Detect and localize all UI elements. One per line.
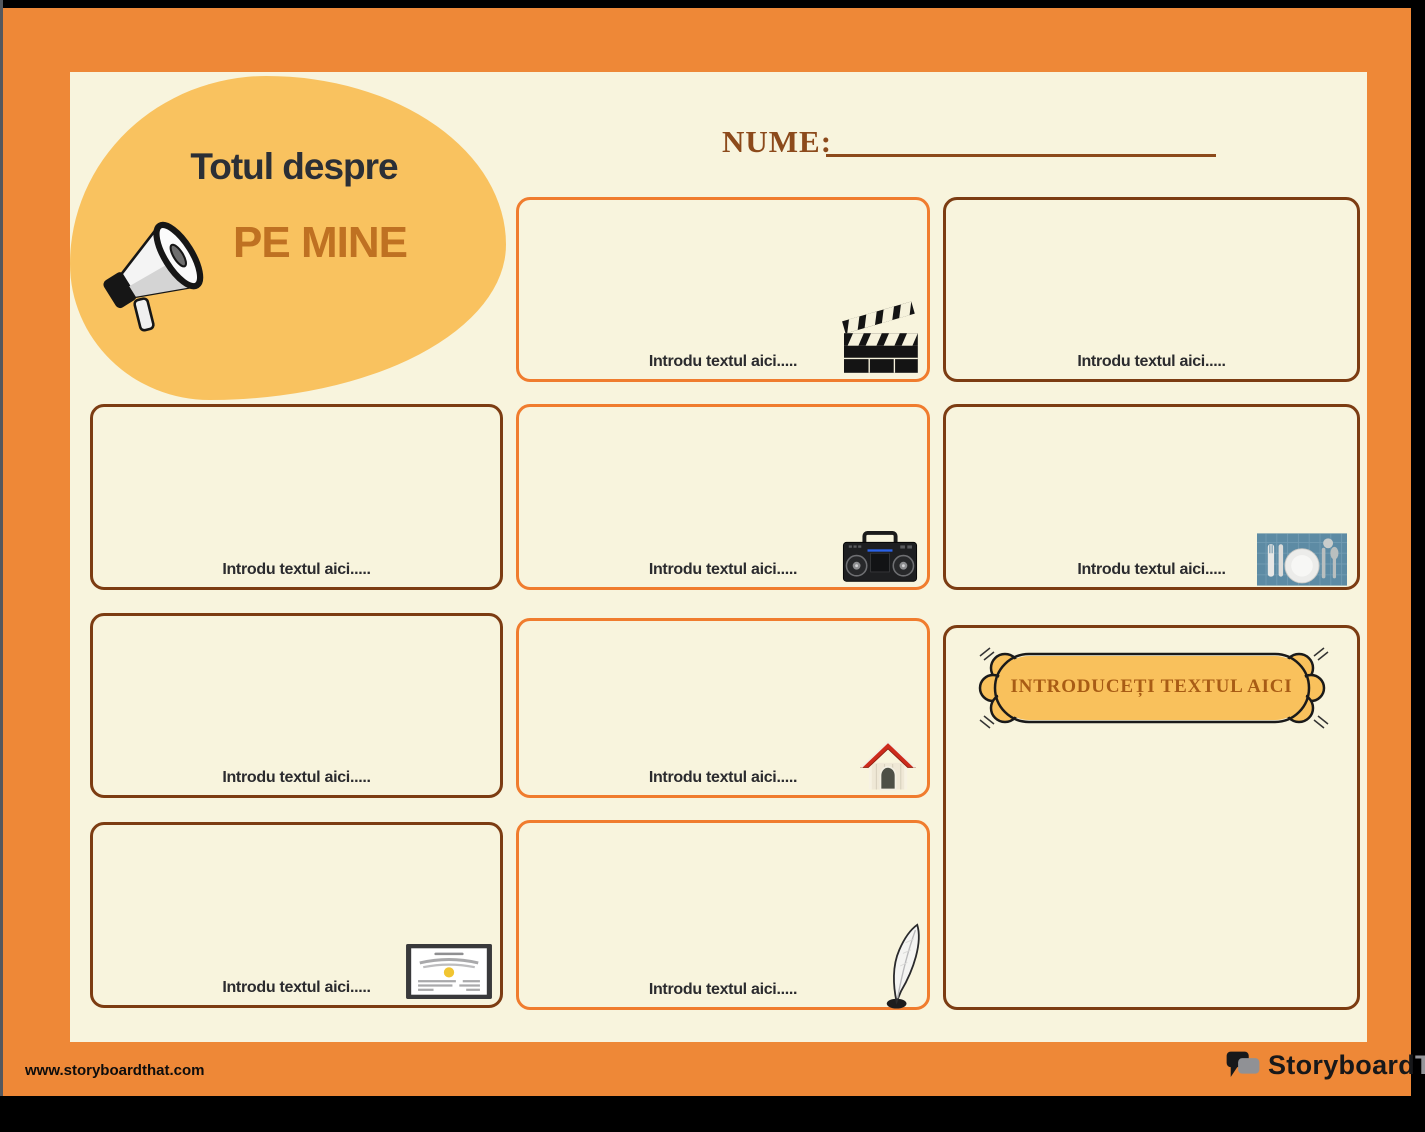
text-box-top-middle[interactable]: Introdu textul aici.....: [516, 197, 930, 382]
worksheet-page: Totul despre PE MINE NUME: Introdu textu…: [0, 0, 1425, 1132]
storyboardthat-logo: StoryboardThat: [1225, 1049, 1425, 1082]
certificate-icon: [406, 944, 492, 999]
logo-part2: That: [1415, 1050, 1425, 1080]
text-box-row4-middle[interactable]: Introdu textul aici.....: [516, 820, 930, 1010]
text-box-row2-right[interactable]: Introdu textul aici.....: [943, 404, 1360, 590]
text-box-row3-left[interactable]: Introdu textul aici.....: [90, 613, 503, 798]
text-box-row3-middle[interactable]: Introdu textul aici.....: [516, 618, 930, 798]
banner-label: INTRODUCEȚI TEXTUL AICI: [972, 676, 1332, 698]
text-box-bottom-right[interactable]: INTRODUCEȚI TEXTUL AICI: [943, 625, 1360, 1010]
text-box-top-right[interactable]: Introdu textul aici.....: [943, 197, 1360, 382]
logo-part1: Storyboard: [1268, 1050, 1415, 1080]
placeholder-label: Introdu textul aici.....: [519, 981, 927, 999]
website-url: www.storyboardthat.com: [25, 1062, 204, 1079]
name-input-line[interactable]: [826, 118, 1216, 157]
logo-text: StoryboardThat: [1268, 1050, 1425, 1081]
boombox-radio-icon: [841, 525, 919, 583]
dog-house-icon: [859, 737, 917, 791]
placemat-dinner-setting-icon: [1257, 533, 1347, 586]
speech-bubbles-icon: [1225, 1049, 1261, 1082]
clapperboard-icon: [835, 295, 925, 375]
name-label: NUME:: [722, 124, 832, 160]
placeholder-label: Introdu textul aici.....: [93, 769, 500, 787]
text-box-row2-middle[interactable]: Introdu textul aici.....: [516, 404, 930, 590]
enter-text-banner[interactable]: INTRODUCEȚI TEXTUL AICI: [972, 642, 1332, 734]
text-box-row2-left[interactable]: Introdu textul aici.....: [90, 404, 503, 590]
feather-quill-icon: [881, 923, 923, 1009]
text-box-row4-left[interactable]: Introdu textul aici.....: [90, 822, 503, 1008]
title-line-1: Totul despre: [114, 146, 474, 188]
megaphone-icon: [90, 210, 214, 334]
placeholder-label: Introdu textul aici.....: [93, 561, 500, 579]
placeholder-label: Introdu textul aici.....: [946, 353, 1357, 371]
